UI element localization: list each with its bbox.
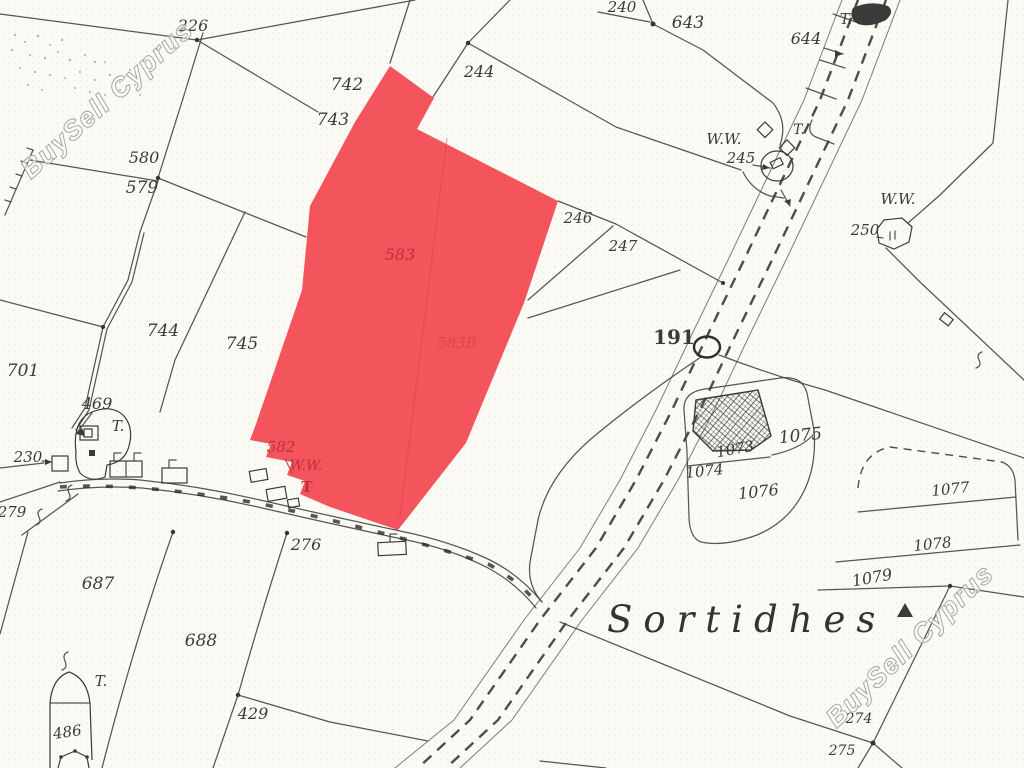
watermark-bottom-right: BuySell Cyprus [820, 558, 999, 733]
map-label-582: 582 [267, 438, 296, 456]
map-label-1079: 1079 [850, 565, 893, 591]
map-label-230: 230 [13, 448, 43, 466]
gate-symbol [940, 313, 954, 326]
map-label-579: 579 [126, 178, 159, 198]
map-label-1076: 1076 [737, 480, 779, 503]
map-label-250: 250 [850, 221, 880, 239]
road-dashed-line-right [446, 0, 886, 768]
map-label-247: 247 [608, 237, 638, 255]
triangle-marker [897, 603, 913, 617]
enclosure-486 [50, 652, 92, 768]
map-label-429: 429 [237, 704, 269, 723]
map-label-ww: W.W. [290, 458, 323, 474]
spring-symbol [36, 509, 42, 525]
map-label-687: 687 [82, 574, 115, 594]
map-label-275: 275 [828, 743, 856, 759]
map-label-246: 246 [563, 209, 593, 227]
roadside-building [378, 541, 407, 555]
map-label-191: 191 [653, 325, 695, 349]
place-name-sortidhes: Sortidhes [607, 598, 886, 641]
map-label-743: 743 [317, 110, 349, 130]
watermark-top-left: BuySell Cyprus [15, 14, 199, 184]
map-label-644: 644 [791, 29, 822, 48]
map-label-1074: 1074 [685, 460, 725, 482]
map-label-486: 486 [51, 721, 83, 743]
map-label-t: T. [793, 122, 805, 138]
building-blob [851, 3, 891, 25]
map-label-t: T. [840, 10, 853, 28]
map-label-583b: 583B [437, 334, 477, 352]
road-junction-boundaries [530, 337, 1024, 603]
map-label-580: 580 [129, 148, 160, 167]
map-label-ww: W.W. [880, 190, 915, 208]
landmark-circle-191 [694, 337, 720, 358]
map-label-245: 245 [726, 149, 756, 167]
map-label-279: 279 [0, 503, 27, 521]
spring-symbol [62, 652, 68, 670]
map-label-742: 742 [331, 75, 363, 95]
map-label-701: 701 [7, 361, 39, 381]
map-label-1077: 1077 [931, 478, 971, 500]
map-label-643: 643 [672, 13, 704, 33]
map-label-469: 469 [81, 394, 113, 413]
cadastral-map-stage: 226742743580579244240643T.644W.W.T.245W.… [0, 0, 1024, 768]
map-label-745: 745 [226, 334, 258, 354]
map-label-1075: 1075 [778, 424, 823, 448]
map-label-688: 688 [185, 631, 218, 651]
map-label-244: 244 [463, 62, 495, 81]
map-label-276: 276 [290, 535, 322, 554]
field-boundaries [0, 0, 1024, 768]
map-label-744: 744 [147, 321, 179, 341]
well-symbol [757, 122, 773, 138]
road-edge-right [460, 0, 900, 768]
map-label-t: T. [95, 672, 108, 690]
spring-symbol [976, 352, 982, 368]
map-canvas: 226742743580579244240643T.644W.W.T.245W.… [0, 0, 1024, 768]
map-label-ww: W.W. [706, 130, 741, 148]
building [162, 468, 187, 483]
well-enclosure-250 [877, 218, 982, 368]
map-label-t: T. [112, 417, 125, 435]
map-label-240: 240 [607, 0, 637, 16]
map-label-583: 583 [385, 245, 416, 264]
map-label-t: T [301, 478, 313, 496]
